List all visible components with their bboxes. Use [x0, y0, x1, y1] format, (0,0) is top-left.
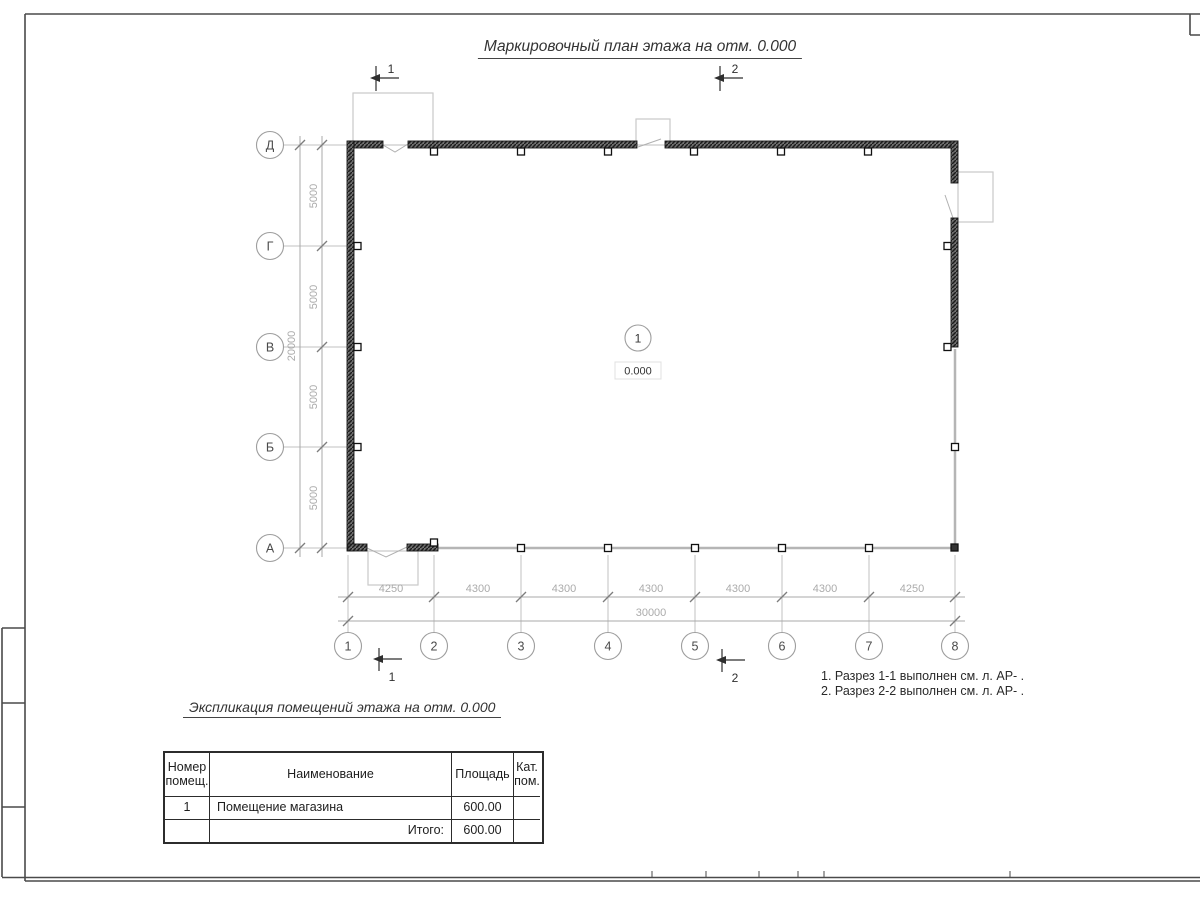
axis-label-a: А: [266, 542, 275, 556]
dim-4250-2: 4250: [900, 583, 924, 595]
explication-title: Экспликация помещений этажа на отм. 0.00…: [183, 699, 501, 718]
section-marks: [370, 66, 745, 672]
row1-number: 1: [165, 797, 210, 820]
wall-right-seg2: [951, 218, 958, 347]
dim-5000-2: 5000: [308, 285, 320, 309]
wall-top-seg3: [665, 141, 958, 148]
drawing-sheet: 5000 5000 5000 5000 20000 4250 4300 4300…: [0, 0, 1200, 900]
dim-4300-2: 4300: [552, 583, 576, 595]
dim-5000-1: 5000: [308, 184, 320, 208]
col-header-area: Площадь: [452, 753, 514, 797]
total-label: Итого:: [210, 820, 452, 842]
section-label-1-bottom: 1: [389, 670, 396, 684]
row1-area: 600.00: [452, 797, 514, 820]
section-mark-1-bottom: [373, 648, 402, 671]
section-mark-2-bottom: [716, 649, 745, 672]
extension-lines: [284, 145, 955, 632]
door-swing-bottom-left: [367, 547, 407, 557]
section-label-1-top: 1: [388, 62, 395, 76]
axis-label-1: 1: [345, 640, 352, 654]
door-swings: [367, 139, 953, 557]
axis-label-6: 6: [779, 640, 786, 654]
axis-label-8: 8: [952, 640, 959, 654]
plan-title: Маркировочный план этажа на отм. 0.000: [478, 38, 802, 59]
door-swing-right: [945, 195, 953, 218]
porch-outlines: [353, 93, 993, 585]
dim-20000: 20000: [286, 331, 298, 362]
col-header-number: Номер помещ.: [165, 753, 210, 797]
porch-bottom-left: [368, 551, 418, 585]
section-label-2-top: 2: [732, 62, 739, 76]
axis-label-4: 4: [605, 640, 612, 654]
room-number: 1: [635, 332, 642, 346]
section-label-2-bottom: 2: [732, 671, 739, 685]
axis-label-3: 3: [518, 640, 525, 654]
note-line-2: 2. Разрез 2-2 выполнен см. л. АР- .: [821, 684, 1024, 699]
thin-walls: [438, 349, 955, 548]
col-header-name: Наименование: [210, 753, 452, 797]
section-mark-2-top: [714, 66, 743, 91]
total-empty: [165, 820, 210, 842]
wall-bottom-seg1: [348, 544, 367, 551]
dim-5000-3: 5000: [308, 385, 320, 409]
titleblock-stub-lines: [652, 871, 1010, 877]
axis-label-g: Г: [267, 240, 274, 254]
section-mark-1-top: [370, 66, 399, 91]
axis-label-v: В: [266, 341, 274, 355]
dimension-labels: 5000 5000 5000 5000 20000 4250 4300 4300…: [286, 184, 924, 619]
walls: [347, 141, 958, 551]
dim-4300-5: 4300: [813, 583, 837, 595]
dim-4250-1: 4250: [379, 583, 403, 595]
total-category: [514, 820, 540, 842]
col-axis-labels: 1 2 3 4 5 6 7 8: [345, 640, 959, 654]
note-line-1: 1. Разрез 1-1 выполнен см. л. АР- .: [821, 669, 1024, 684]
wall-left: [347, 141, 354, 551]
wall-top-seg2: [408, 141, 637, 148]
col-header-category: Кат. пом.: [514, 753, 540, 797]
explication-table: Номер помещ. Наименование Площадь Кат. п…: [163, 751, 544, 844]
axis-label-2: 2: [431, 640, 438, 654]
porch-top-left: [353, 93, 433, 145]
axis-label-b: Б: [266, 441, 274, 455]
total-area: 600.00: [452, 820, 514, 842]
corner-column: [951, 544, 958, 551]
row-axis-labels: Д Г В Б А: [266, 139, 275, 556]
dim-5000-4: 5000: [308, 486, 320, 510]
axis-label-d: Д: [266, 139, 275, 153]
columns: [354, 148, 959, 552]
dim-4300-4: 4300: [726, 583, 750, 595]
row1-category: [514, 797, 540, 820]
axis-label-7: 7: [866, 640, 873, 654]
dim-4300-3: 4300: [639, 583, 663, 595]
notes-block: 1. Разрез 1-1 выполнен см. л. АР- . 2. Р…: [821, 669, 1024, 699]
porch-right: [958, 172, 993, 222]
room-tag: 1 0.000: [615, 325, 661, 379]
row1-name: Помещение магазина: [210, 797, 452, 820]
axis-label-5: 5: [692, 640, 699, 654]
wall-right-seg1: [951, 141, 958, 183]
dim-30000: 30000: [636, 607, 667, 619]
dim-4300-1: 4300: [466, 583, 490, 595]
door-swing-top-mid: [638, 139, 661, 147]
room-elevation: 0.000: [624, 366, 652, 378]
